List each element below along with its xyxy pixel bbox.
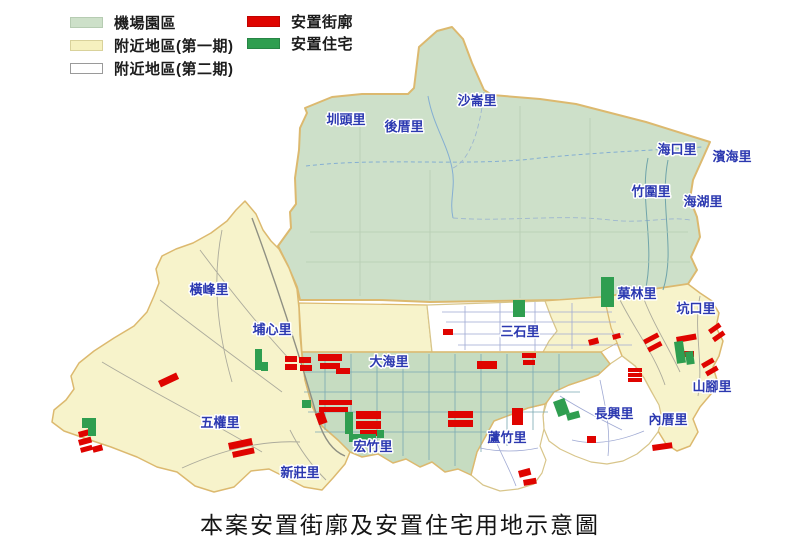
resettlement-street-block — [300, 365, 312, 371]
village-label: 坑口里 — [676, 301, 715, 316]
legend-item: 機場園區 — [70, 12, 176, 33]
legend-item: 附近地區(第二期) — [70, 58, 234, 79]
resettlement-street-block — [92, 444, 103, 452]
village-label: 竹圍里 — [630, 184, 670, 199]
resettlement-housing-block — [302, 400, 311, 408]
village-label: 三石里 — [500, 324, 539, 339]
legend-swatch — [70, 63, 103, 74]
map-page: { "title": "本案安置街廓及安置住宅用地示意圖", "legend":… — [0, 0, 800, 550]
resettlement-housing-block — [345, 412, 353, 434]
resettlement-street-block — [523, 360, 535, 365]
village-label: 埔心里 — [252, 322, 291, 337]
resettlement-street-block — [628, 378, 642, 382]
resettlement-street-block — [356, 411, 381, 419]
page-title: 本案安置街廓及安置住宅用地示意圖 — [200, 512, 600, 538]
resettlement-housing-block — [601, 277, 614, 307]
village-label: 後厝里 — [384, 119, 423, 134]
legend-swatch — [247, 16, 280, 27]
resettlement-street-block — [336, 368, 350, 374]
resettlement-street-block — [356, 421, 381, 429]
village-label: 海湖里 — [683, 194, 722, 209]
resettlement-street-block — [319, 400, 352, 405]
region-nearby1-strip — [299, 303, 432, 352]
village-label: 內厝里 — [648, 412, 687, 427]
village-label: 蘆竹里 — [487, 430, 526, 445]
village-label: 五權里 — [200, 415, 239, 430]
resettlement-street-block — [628, 368, 642, 372]
resettlement-street-block — [522, 353, 536, 358]
resettlement-street-block — [448, 411, 473, 418]
village-label: 長興里 — [594, 406, 633, 421]
resettlement-street-block — [477, 361, 497, 369]
resettlement-housing-block — [255, 349, 262, 370]
resettlement-street-block — [652, 442, 673, 451]
legend-item: 附近地區(第一期) — [70, 35, 234, 56]
legend-swatch — [70, 40, 103, 51]
resettlement-street-block — [285, 356, 297, 362]
village-label: 橫峰里 — [189, 282, 228, 297]
resettlement-street-block — [299, 357, 311, 363]
resettlement-housing-block — [88, 428, 96, 436]
resettlement-street-block — [318, 354, 342, 361]
legend-item: 安置住宅 — [247, 33, 353, 54]
resettlement-street-block — [628, 373, 642, 377]
title-bar: 本案安置街廓及安置住宅用地示意圖 — [0, 506, 800, 540]
village-label: 圳頭里 — [326, 112, 365, 127]
resettlement-street-block — [285, 364, 297, 370]
resettlement-street-block — [512, 408, 523, 425]
resettlement-housing-block — [377, 430, 384, 438]
resettlement-housing-block — [261, 362, 268, 371]
village-label: 新莊里 — [280, 465, 319, 480]
legend: 機場園區附近地區(第一期)附近地區(第二期)安置街廓安置住宅 — [0, 0, 420, 90]
legend-swatch — [70, 17, 103, 28]
village-label: 菓林里 — [616, 286, 656, 301]
resettlement-housing-block — [513, 300, 525, 317]
legend-item-label: 安置住宅 — [291, 33, 353, 54]
resettlement-street-block — [443, 329, 453, 335]
village-label: 沙崙里 — [457, 93, 496, 108]
legend-item-label: 附近地區(第二期) — [114, 58, 234, 79]
village-label: 濱海里 — [712, 149, 751, 164]
village-label: 宏竹里 — [353, 439, 392, 454]
legend-item: 安置街廓 — [247, 11, 353, 32]
legend-swatch — [247, 38, 280, 49]
legend-item-label: 安置街廓 — [291, 11, 353, 32]
resettlement-housing-block — [82, 418, 96, 428]
resettlement-street-block — [587, 436, 596, 443]
legend-item-label: 附近地區(第一期) — [114, 35, 234, 56]
village-label: 海口里 — [657, 142, 696, 157]
village-label: 大海里 — [369, 354, 408, 369]
resettlement-street-block — [448, 420, 473, 427]
village-label: 山腳里 — [692, 379, 731, 394]
legend-item-label: 機場園區 — [114, 12, 176, 33]
resettlement-street-block — [80, 445, 93, 453]
